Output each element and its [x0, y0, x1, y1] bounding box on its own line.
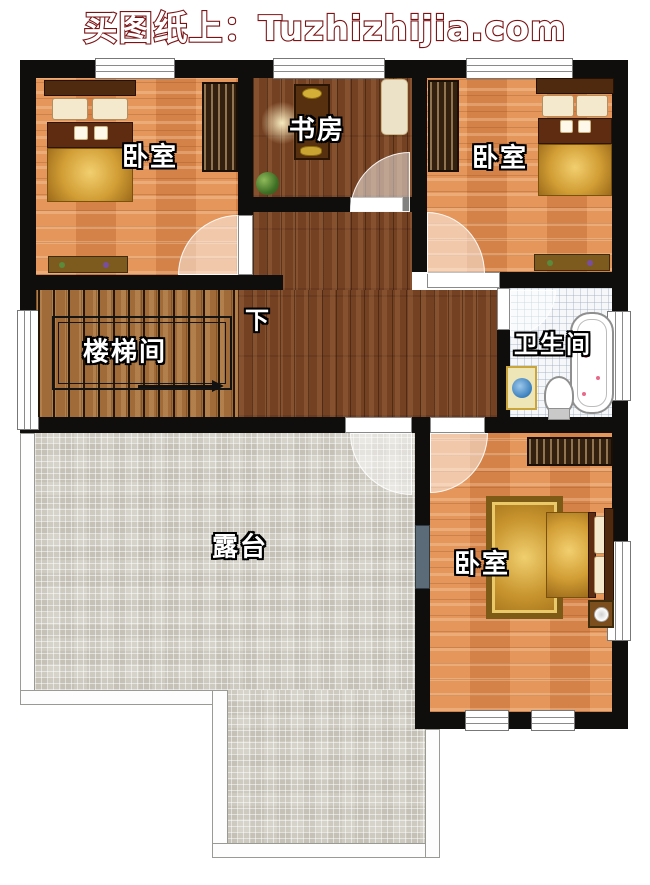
wardrobe-bedroom3	[527, 437, 613, 466]
stair-arrow-line	[138, 385, 214, 388]
label-terrace: 露台	[212, 527, 268, 564]
stair-arrow-head	[212, 380, 224, 392]
parapet-right	[425, 729, 440, 858]
rug-study	[381, 79, 408, 135]
desk-items-study	[300, 146, 322, 156]
desk-lamp-study	[302, 88, 322, 99]
window-bottom-bedroom3-b	[531, 710, 575, 731]
parapet-bottom	[212, 843, 437, 858]
door-terrace	[345, 417, 412, 433]
wardrobe-bedroom1	[202, 82, 238, 172]
label-bathroom: 卫生间	[514, 325, 592, 360]
wall-bedroom3-bottom	[415, 712, 628, 729]
wall-bedroom1-right	[238, 78, 253, 215]
nightstand-bedroom3	[588, 600, 614, 628]
wardrobe-bedroom2	[428, 80, 459, 172]
bed-bedroom3	[546, 508, 612, 600]
door-bedroom3	[430, 417, 485, 433]
watermark-logo: 买图纸上：Tuzhizhijia.com	[0, 0, 650, 56]
window-bottom-bedroom3-a	[465, 710, 509, 731]
door-bathroom	[497, 288, 510, 330]
bed-bedroom2	[536, 78, 612, 196]
label-stair-direction-down: 下	[245, 301, 271, 336]
bed-bedroom1	[44, 80, 134, 202]
label-stairwell: 楼梯间	[83, 332, 167, 369]
wall-hall-bottom-a	[20, 417, 345, 433]
window-top-bedroom2	[466, 58, 573, 79]
floor-plan-page: 买图纸上：Tuzhizhijia.com	[0, 0, 650, 885]
terrace-extension	[225, 690, 428, 845]
door-bedroom1	[238, 215, 253, 275]
parapet-bottom-left	[20, 690, 225, 705]
wall-bedroom2-left	[412, 78, 427, 272]
hallway-lower	[238, 290, 497, 417]
desk-bedroom2	[534, 254, 610, 271]
label-study: 书房	[289, 110, 345, 147]
wall-bedroom2-bottom	[500, 272, 628, 288]
wall-study-bottom-a	[253, 197, 350, 212]
desk-bedroom1	[48, 256, 128, 273]
watermark-title: 买图纸上：Tuzhizhijia.com	[83, 9, 566, 49]
wall-hall-bottom-b	[412, 417, 430, 433]
parapet-step	[212, 690, 228, 858]
wall-bedroom1-bottom	[20, 275, 283, 290]
door-bedroom2	[427, 272, 500, 288]
label-bedroom-top-right: 卧室	[472, 138, 528, 175]
window-left-stairwell	[17, 310, 39, 430]
plant-study	[256, 172, 279, 195]
parapet-left	[20, 433, 35, 705]
window-top-study	[273, 58, 385, 79]
window-terrace-bedroom3	[415, 525, 430, 589]
toilet-tank	[548, 408, 570, 420]
label-bedroom-top-left: 卧室	[122, 137, 178, 174]
label-bedroom-bottom-right: 卧室	[454, 544, 510, 581]
washing-machine	[506, 366, 537, 410]
site-watermark-header: 买图纸上：Tuzhizhijia.com	[0, 0, 650, 56]
window-top-bedroom1	[95, 58, 175, 79]
